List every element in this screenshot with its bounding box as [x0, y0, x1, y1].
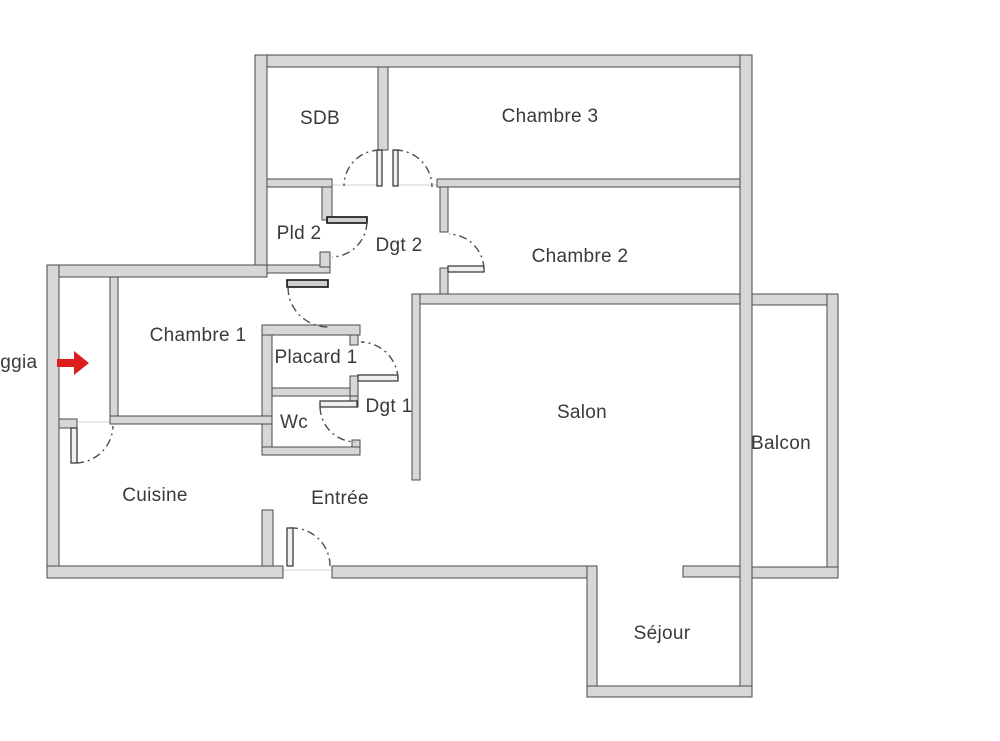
placard1-door-arc — [361, 342, 398, 379]
sdb-door-arc — [344, 150, 380, 186]
loggia-door-arc — [76, 426, 113, 463]
wall-left-section-top — [47, 265, 267, 277]
entree-door-arc — [290, 528, 330, 566]
wall-balcon-bottom — [752, 567, 838, 578]
room-label-sdb: SDB — [300, 108, 340, 130]
wall-bottom-left — [47, 566, 283, 578]
room-label-cuisine: Cuisine — [122, 485, 187, 507]
wall-balcon-right — [827, 294, 838, 578]
wall-pld2-corner-stub — [320, 252, 330, 267]
room-label-balcon: Balcon — [751, 433, 811, 455]
wall-placard-right-top — [350, 335, 358, 345]
room-label-loggia: Loggia — [0, 352, 37, 374]
walls — [47, 55, 838, 697]
room-label-chambre1: Chambre 1 — [150, 325, 247, 347]
wall-loggia-strip — [110, 277, 118, 424]
wall-entree-stub — [262, 510, 273, 566]
wall-placard-block-left — [262, 325, 272, 455]
loggia-arrow-icon — [57, 351, 89, 375]
wall-placard-right-bottom — [350, 376, 358, 396]
sdb-door-leaf — [377, 150, 382, 186]
chambre3-door-arc — [395, 150, 432, 187]
wall-sejour-left — [587, 566, 597, 697]
wall-sdb-bottom — [267, 179, 332, 187]
chambre1-door-leaf — [287, 280, 328, 287]
room-label-pld2: Pld 2 — [277, 223, 322, 245]
entree-door-leaf — [287, 528, 293, 566]
chambre1-door-arc — [288, 287, 328, 327]
wall-chambre2-left-upper — [440, 187, 448, 232]
room-label-dgt2: Dgt 2 — [376, 235, 423, 257]
room-label-placard1: Placard 1 — [275, 347, 358, 369]
wall-sejour-bottom — [587, 686, 752, 697]
wall-pld2-right — [322, 187, 332, 220]
chambre2-door-arc — [449, 234, 484, 269]
room-label-dgt1: Dgt 1 — [366, 396, 413, 418]
wall-salon-left — [412, 294, 420, 480]
room-label-entree: Entrée — [311, 488, 369, 510]
wall-outer-top — [255, 55, 752, 67]
wall-placard-wc-divider — [272, 388, 352, 396]
pld2-door-leaf — [327, 217, 367, 223]
wall-balcon-top — [752, 294, 838, 305]
floor-plan: SDB Chambre 3 Pld 2 Dgt 2 Chambre 2 Cham… — [0, 0, 1000, 741]
wall-outer-left — [47, 265, 59, 578]
wall-salon-top — [412, 294, 740, 304]
wall-wc-bottom — [262, 447, 360, 455]
wall-chambre1-bottom — [110, 416, 272, 424]
chambre3-door-leaf — [393, 150, 398, 186]
wall-outer-east — [740, 55, 752, 697]
floor-plan-drawing — [0, 0, 1000, 741]
wall-bottom-mid — [332, 566, 597, 578]
wall-loggia-bottom-stub — [59, 419, 77, 428]
wall-wc-bottom-stub — [352, 440, 360, 447]
wall-outer-upper-left — [255, 55, 267, 277]
placard1-door-leaf — [358, 375, 398, 381]
wall-placard-top — [262, 325, 360, 335]
room-label-sejour: Séjour — [634, 623, 691, 645]
wall-sdb-chambre3-divider — [378, 67, 388, 150]
room-label-salon: Salon — [557, 402, 607, 424]
chambre2-door-leaf — [448, 266, 484, 272]
room-label-wc: Wc — [280, 412, 308, 434]
wall-chambre2-top — [437, 179, 740, 187]
wc-door-leaf — [320, 401, 357, 407]
pld2-door-arc — [332, 222, 367, 257]
wall-salon-bottom — [683, 566, 740, 577]
wc-door-arc — [320, 407, 355, 442]
room-label-chambre2: Chambre 2 — [532, 246, 629, 268]
room-label-chambre3: Chambre 3 — [502, 106, 599, 128]
loggia-door-leaf — [71, 428, 77, 463]
